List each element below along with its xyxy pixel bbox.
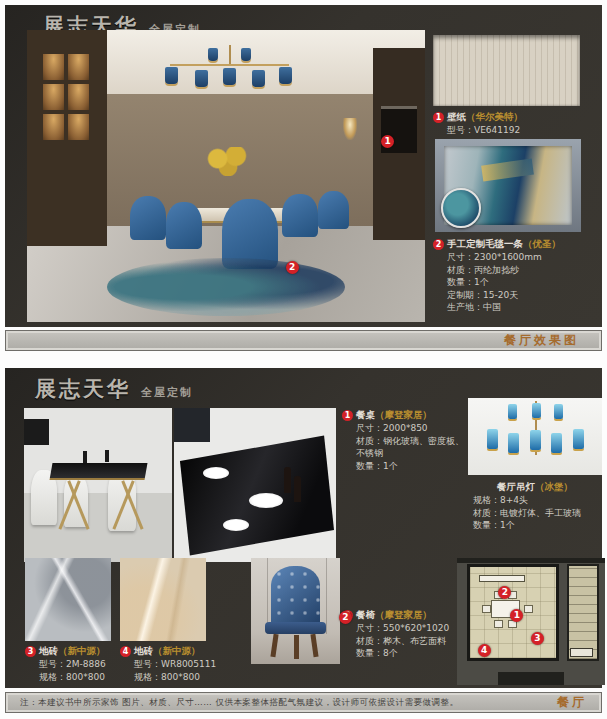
plan-marker-1: 1 bbox=[510, 609, 523, 622]
spec-line: 型号：2M-8886 bbox=[25, 658, 106, 671]
black-glass-table bbox=[49, 463, 147, 480]
chandelier-arm-bar bbox=[170, 64, 289, 66]
spec-value: 8+4头 bbox=[500, 495, 528, 505]
table-title: 餐桌 bbox=[356, 409, 375, 420]
plate bbox=[223, 519, 249, 531]
plan-counter bbox=[570, 648, 594, 657]
chandelier-blue-shade bbox=[223, 68, 236, 85]
wine-bottle bbox=[294, 476, 301, 502]
blue-glass-shade bbox=[508, 433, 519, 453]
spec-value: WR8005111 bbox=[161, 659, 216, 669]
wall-panel-line bbox=[326, 558, 327, 634]
brand-logo: 展志天华 bbox=[35, 375, 131, 403]
wine-bottle bbox=[284, 467, 291, 493]
top-panel: 展志天华 全屋定制 bbox=[5, 5, 602, 327]
photo-blue-chair bbox=[318, 191, 350, 229]
spec-value: 中国 bbox=[483, 302, 501, 312]
cabinet-lit-shelf bbox=[68, 84, 89, 110]
chandelier-info: 餐厅吊灯（冰堡） 规格：8+4头 材质：电镀灯体、手工玻璃 数量：1个 bbox=[467, 480, 603, 532]
spec-line: 规格：800*800 bbox=[120, 671, 216, 684]
spec-line: 规格：8+4头 bbox=[467, 494, 603, 507]
tile1-info: 3地砖（新中源） 型号：2M-8886 规格：800*800 bbox=[25, 644, 106, 683]
spec-value: 8个 bbox=[383, 648, 398, 658]
spec-label: 尺寸： bbox=[356, 423, 383, 433]
rendering-stamp: 餐厅效果图 bbox=[504, 332, 579, 349]
plan-wall bbox=[498, 672, 563, 685]
spec-value: 550*620*1020 bbox=[383, 623, 449, 633]
spec-value: 丙纶加捻纱 bbox=[474, 265, 519, 275]
spec-label: 定制期： bbox=[447, 290, 483, 300]
photo-tv bbox=[24, 419, 49, 445]
spec-label: 数量： bbox=[447, 277, 474, 287]
spec-label: 材质： bbox=[473, 508, 500, 518]
blue-glass-shade bbox=[487, 429, 498, 449]
rug-info: 2手工定制毛毯一条（优圣） 尺寸：2300*1600mm 材质：丙纶加捻纱 数量… bbox=[433, 237, 561, 314]
spec-value: 1个 bbox=[383, 461, 398, 471]
room-stamp: 餐厅 bbox=[557, 694, 587, 711]
spec-label: 材质： bbox=[356, 436, 383, 446]
candelabra bbox=[83, 451, 87, 463]
spec-label: 数量： bbox=[356, 648, 383, 658]
spec-label: 规格： bbox=[473, 495, 500, 505]
rug-detail-inset bbox=[441, 188, 481, 228]
wallpaper-title-line: 1壁纸（华尔美特） bbox=[433, 110, 523, 124]
chair-seat bbox=[265, 622, 326, 635]
plan-chair bbox=[482, 605, 491, 613]
spec-label: 数量： bbox=[473, 520, 500, 530]
table-brand: （摩登家居） bbox=[375, 409, 432, 420]
spec-value: VE641192 bbox=[474, 125, 520, 135]
chair-title: 餐椅 bbox=[356, 609, 375, 620]
photo-area-rug bbox=[107, 258, 346, 316]
plan-cabinet-zone bbox=[567, 564, 600, 661]
chair-info: 2餐椅（摩登家居） 尺寸：550*620*1020 材质：桦木、布艺面料 数量：… bbox=[342, 608, 468, 660]
table-title-line: 1餐桌（摩登家居） bbox=[342, 408, 468, 422]
spec-line: 材质：丙纶加捻纱 bbox=[433, 264, 561, 277]
spec-line: 型号：WR8005111 bbox=[120, 658, 216, 671]
photo-blue-chair bbox=[166, 202, 202, 249]
spec-line: 生产地：中国 bbox=[433, 301, 561, 314]
rug-title: 手工定制毛毯一条 bbox=[447, 238, 523, 249]
footer-note-text: 注：本建议书中所示家饰 图片、材质、尺寸…… 仅供本案整体搭配气氛建议，设计师可… bbox=[20, 697, 458, 709]
plan-wall bbox=[457, 558, 605, 563]
item-number-badge: 1 bbox=[342, 410, 353, 421]
spec-value: 桦木、布艺面料 bbox=[383, 636, 446, 646]
photo-marker-2: 2 bbox=[286, 261, 299, 274]
spec-value: 2000*850 bbox=[383, 423, 428, 433]
spec-line: 定制期：15-20天 bbox=[433, 289, 561, 302]
spec-line: 尺寸：550*620*1020 bbox=[342, 622, 468, 635]
tile2-info: 4地砖（新中源） 型号：WR8005111 规格：800*800 bbox=[120, 644, 216, 683]
top-divider-bar: 餐厅效果图 bbox=[5, 330, 602, 351]
tile2-title-line: 4地砖（新中源） bbox=[120, 644, 216, 658]
chandelier-title: 餐厅吊灯 bbox=[497, 481, 535, 492]
spec-line: 材质：桦木、布艺面料 bbox=[342, 635, 468, 648]
chandelier-blue-shade bbox=[279, 67, 292, 84]
cabinet-lit-shelf bbox=[68, 114, 89, 140]
chandelier-blue-shade bbox=[165, 67, 178, 84]
spec-label: 规格： bbox=[134, 672, 161, 682]
spec-label: 型号： bbox=[39, 659, 66, 669]
spec-label: 型号： bbox=[447, 125, 474, 135]
spec-line: 尺寸：2000*850 bbox=[342, 422, 468, 435]
spec-line: 材质：钢化玻璃、密度板、不锈钢 bbox=[342, 435, 468, 460]
dining-room-rendering-photo: 1 2 bbox=[27, 30, 425, 322]
tile2-brand: （新中源） bbox=[153, 645, 201, 656]
rug-title-line: 2手工定制毛毯一条（优圣） bbox=[433, 237, 561, 251]
spec-label: 生产地： bbox=[447, 302, 483, 312]
spec-line: 数量：8个 bbox=[342, 647, 468, 660]
spec-value: 1个 bbox=[500, 520, 515, 530]
tile1-title: 地砖 bbox=[39, 645, 58, 656]
spec-line: 数量：1个 bbox=[342, 460, 468, 473]
photo-left-cabinet bbox=[27, 30, 107, 246]
floor-plan: 1 2 3 4 bbox=[457, 558, 605, 685]
candelabra bbox=[105, 450, 109, 462]
rug-brand: （优圣） bbox=[523, 238, 561, 249]
chandelier-blue-shade bbox=[241, 48, 251, 61]
blue-glass-shade bbox=[508, 404, 517, 419]
cabinet-lit-shelf bbox=[68, 54, 89, 80]
photo-blue-chair bbox=[130, 196, 166, 240]
wallpaper-swatch-photo bbox=[433, 35, 580, 106]
chair-photo-marker: 2 bbox=[339, 611, 352, 624]
spec-label: 尺寸： bbox=[356, 623, 383, 633]
beige-marble-tile-photo bbox=[120, 558, 206, 641]
photo-background-shape bbox=[174, 408, 210, 442]
spec-value: 2300*1600mm bbox=[474, 252, 542, 262]
spec-label: 型号： bbox=[134, 659, 161, 669]
spec-value: 800*800 bbox=[66, 672, 105, 682]
plan-sideboard bbox=[479, 575, 525, 581]
table-info: 1餐桌（摩登家居） 尺寸：2000*850 材质：钢化玻璃、密度板、不锈钢 数量… bbox=[342, 408, 468, 472]
plate bbox=[203, 467, 229, 479]
item-number-badge: 2 bbox=[433, 239, 444, 250]
rug-photo bbox=[435, 139, 581, 232]
chair-wood-leg bbox=[271, 634, 279, 658]
spec-value: 2M-8886 bbox=[66, 659, 106, 669]
item-number-badge: 1 bbox=[433, 112, 444, 123]
spec-line: 尺寸：2300*1600mm bbox=[433, 251, 561, 264]
spec-value: 800*800 bbox=[161, 672, 200, 682]
dining-set-photo bbox=[24, 408, 172, 562]
wallpaper-title: 壁纸 bbox=[447, 111, 466, 122]
spec-label: 材质： bbox=[447, 265, 474, 275]
spec-label: 尺寸： bbox=[447, 252, 474, 262]
chandelier-blue-shade bbox=[252, 70, 265, 87]
spec-value: 电镀灯体、手工玻璃 bbox=[500, 508, 581, 518]
chair-wood-leg bbox=[310, 634, 318, 658]
tile1-title-line: 3地砖（新中源） bbox=[25, 644, 106, 658]
brand-header: 展志天华 全屋定制 bbox=[35, 375, 193, 403]
grey-marble-tile-photo bbox=[25, 558, 111, 641]
rug-gold-streak bbox=[482, 158, 535, 181]
chandelier-photo bbox=[468, 398, 602, 475]
tile1-brand: （新中源） bbox=[58, 645, 106, 656]
plan-marker-3: 3 bbox=[531, 632, 544, 645]
cabinet-lit-shelf bbox=[43, 84, 64, 110]
footer-note-bar: 注：本建议书中所示家饰 图片、材质、尺寸…… 仅供本案整体搭配气氛建议，设计师可… bbox=[5, 692, 602, 713]
spec-value: 15-20天 bbox=[483, 290, 518, 300]
spec-line: 数量：1个 bbox=[433, 276, 561, 289]
chandelier-blue-shade bbox=[208, 48, 218, 61]
spec-label: 规格： bbox=[39, 672, 66, 682]
spec-line: 材质：电镀灯体、手工玻璃 bbox=[467, 507, 603, 520]
tile2-title: 地砖 bbox=[134, 645, 153, 656]
spec-line: 数量：1个 bbox=[467, 519, 603, 532]
brand-tagline: 全屋定制 bbox=[141, 385, 193, 400]
cabinet-lit-shelf bbox=[43, 54, 64, 80]
wallpaper-brand: （华尔美特） bbox=[466, 111, 523, 122]
chair-brand: （摩登家居） bbox=[375, 609, 432, 620]
photo-yellow-flowers bbox=[202, 147, 254, 176]
table-closeup-photo bbox=[174, 408, 336, 562]
blue-glass-shade bbox=[532, 403, 541, 418]
photo-wall-sconce bbox=[343, 118, 357, 140]
plan-chair bbox=[494, 620, 503, 628]
chair-title-line: 2餐椅（摩登家居） bbox=[342, 608, 468, 622]
spec-line: 型号：VE641192 bbox=[433, 124, 523, 137]
chair-tufted-back bbox=[271, 566, 321, 625]
item-number-badge: 4 bbox=[120, 646, 131, 657]
spec-label: 数量： bbox=[356, 461, 383, 471]
blue-chair-photo bbox=[251, 558, 340, 664]
blue-glass-shade bbox=[530, 430, 541, 450]
chair-wood-leg bbox=[294, 635, 299, 658]
blue-glass-shade bbox=[554, 404, 563, 419]
photo-blue-chair bbox=[282, 194, 318, 238]
plate bbox=[249, 493, 283, 508]
bottom-panel: 展志天华 全屋定制 bbox=[5, 368, 602, 688]
design-board: 展志天华 全屋定制 bbox=[0, 0, 607, 719]
spec-label: 材质： bbox=[356, 636, 383, 646]
wallpaper-info: 1壁纸（华尔美特） 型号：VE641192 bbox=[433, 110, 523, 137]
plan-chair bbox=[524, 605, 533, 613]
blue-glass-shade bbox=[573, 429, 584, 449]
blue-glass-shade bbox=[551, 433, 562, 453]
spec-value: 1个 bbox=[474, 277, 489, 287]
item-number-badge: 3 bbox=[25, 646, 36, 657]
photo-chandelier bbox=[162, 45, 297, 103]
spec-line: 规格：800*800 bbox=[25, 671, 106, 684]
chandelier-chain bbox=[229, 45, 231, 65]
cabinet-lit-shelf bbox=[43, 114, 64, 140]
chandelier-brand: （冰堡） bbox=[535, 481, 573, 492]
chandelier-title-line: 餐厅吊灯（冰堡） bbox=[467, 480, 603, 494]
chandelier-blue-shade bbox=[195, 70, 208, 87]
